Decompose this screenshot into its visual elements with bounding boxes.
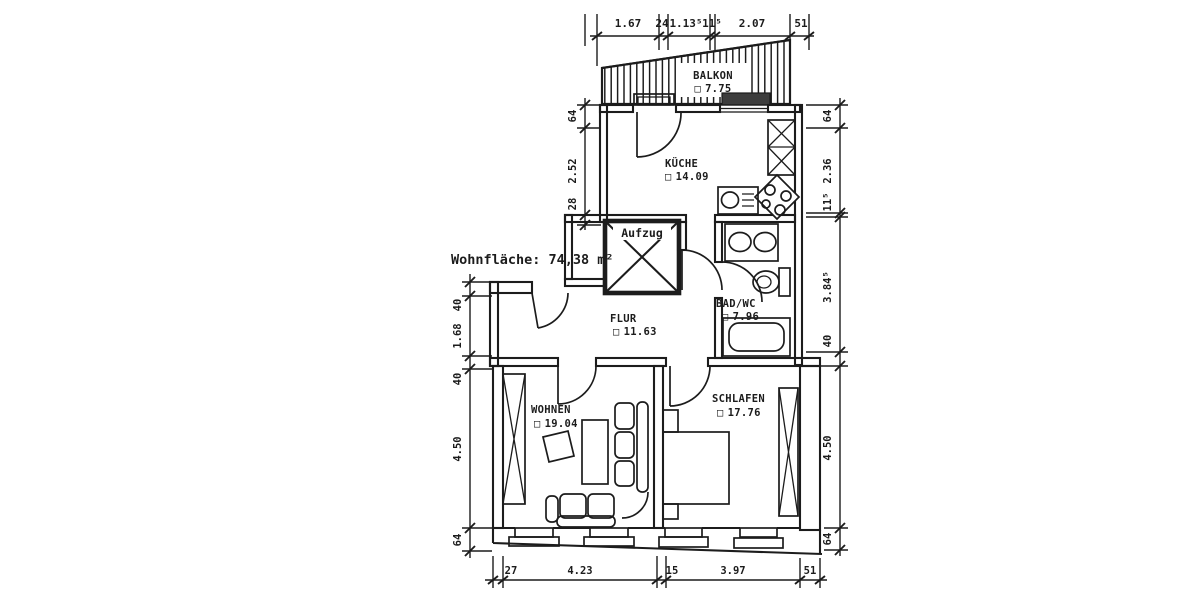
nightstand	[663, 504, 678, 519]
window-bay	[515, 528, 553, 537]
room-label-flur: FLUR	[610, 313, 637, 325]
bedroom-door-swing	[670, 366, 710, 406]
dimension-chain-left-lower: 40 1.68 40 4.50 64	[452, 274, 492, 558]
room-area-wohnen: □19.04	[534, 418, 578, 430]
wall-segment	[596, 358, 666, 366]
sofa-backrest	[637, 402, 648, 492]
dimension-label-top: 11⁵	[702, 17, 722, 30]
bath-door-swing	[722, 262, 762, 302]
dimension-label-bottom: 4.23	[567, 565, 592, 577]
floor-plan-page: { "title": "Wohnfläche: 74,38 m²", "elev…	[0, 0, 1200, 600]
wall-segment	[676, 105, 720, 112]
wall-segment	[490, 358, 558, 366]
couch-armrest	[546, 496, 558, 522]
room-label-bad: BAD/WC	[716, 298, 756, 310]
floor-plan-canvas: BALKON □7.75	[0, 0, 1200, 600]
balcony: BALKON □7.75	[602, 40, 790, 105]
extension-lines	[462, 282, 492, 551]
dimension-label-left: 1.68	[452, 323, 464, 348]
living-room-wardrobe-cross	[503, 374, 525, 504]
window-bay	[590, 528, 628, 537]
dimension-label-right: 64	[822, 110, 834, 123]
stove	[755, 175, 799, 219]
balcony-door-swing	[637, 112, 681, 157]
living-room-furniture	[503, 374, 648, 527]
window-bay	[740, 528, 777, 537]
wall-segment	[565, 279, 605, 286]
wall-segment	[795, 105, 802, 365]
dimension-chain-right: 64 2.36 11⁵ 3.84⁵ 40 4.50 64	[806, 98, 848, 556]
sofa-cushion	[615, 432, 634, 458]
floor-area-title: Wohnfläche: 74,38 m²	[451, 252, 614, 268]
dimension-label-right: 4.50	[822, 435, 834, 460]
dimension-label-bottom: 15	[666, 565, 679, 577]
wall-segment	[490, 282, 498, 366]
couch-cushion	[588, 494, 614, 518]
wall-segment	[800, 366, 820, 530]
dimension-label-top: 24	[655, 17, 669, 30]
bathtub-inner	[729, 323, 784, 351]
dimension-label-right: 11⁵	[822, 193, 834, 212]
window-bay-sill	[734, 538, 783, 548]
room-label-balkon: BALKON	[693, 70, 733, 82]
room-area-schlafen: □17.76	[717, 407, 761, 419]
room-area-bad: □7.96	[722, 311, 759, 323]
wall-segment	[493, 366, 503, 528]
hall-door-swing	[532, 293, 568, 328]
nightstand	[663, 410, 678, 432]
toilet-tank	[779, 268, 790, 296]
dimension-label-right: 2.36	[822, 158, 834, 183]
bedroom-wardrobe-cross	[779, 388, 798, 516]
extension-lines	[493, 556, 820, 588]
dimension-chain-left-upper: 64 2.52 28	[567, 98, 601, 230]
couch-cushion	[560, 494, 586, 518]
sofa-cushion	[615, 461, 634, 486]
dimension-label-right: 40	[822, 335, 834, 348]
dimension-label-top: 2.07	[739, 17, 766, 30]
dimension-label-left: 64	[567, 110, 579, 123]
elevator-label: Aufzug	[621, 226, 663, 240]
window-bay	[665, 528, 702, 537]
kitchen-fixtures	[718, 120, 799, 219]
toilet-bowl-inner	[757, 276, 771, 288]
dimension-chain-bottom: 27 4.23 15 3.97 51	[485, 556, 827, 588]
sofa-corner-arc	[622, 492, 648, 518]
dimension-label-right: 3.84⁵	[822, 271, 834, 303]
room-area-flur: □11.63	[613, 326, 657, 338]
kitchen-sink-basin	[722, 192, 739, 208]
window-bay-sill	[659, 537, 708, 547]
wall-segment	[600, 105, 633, 112]
dimension-label-left: 4.50	[452, 436, 464, 461]
side-table	[543, 431, 574, 462]
wall-segment	[600, 105, 607, 222]
elevator-shaft: Aufzug	[605, 221, 679, 293]
dimension-label-left: 40	[452, 299, 464, 312]
bottom-wall-outer-line	[493, 528, 822, 554]
dimension-label-left: 2.52	[567, 158, 579, 183]
living-room-table	[582, 420, 608, 484]
bathroom-fixtures	[723, 224, 790, 356]
dimension-label-bottom: 27	[505, 565, 518, 577]
wall-segment	[565, 215, 572, 279]
bed	[663, 432, 729, 504]
room-label-kueche: KÜCHE	[665, 156, 698, 170]
dimension-label-bottom: 3.97	[720, 565, 745, 577]
wall-segment	[715, 222, 722, 262]
kitchen-corner-cabinet-cross	[768, 120, 795, 175]
dimension-label-bottom: 51	[804, 565, 817, 577]
wall-segment	[654, 366, 663, 528]
dimension-label-top: 51	[794, 17, 808, 30]
room-label-schlafen: SCHLAFEN	[712, 393, 765, 405]
sofa-cushion	[615, 403, 634, 429]
dimension-label-left: 28	[567, 198, 579, 211]
window-bay-sill	[584, 537, 634, 546]
dimension-label-top: 1.13⁵	[669, 17, 702, 30]
room-area-kueche: □14.09	[665, 171, 709, 183]
washbasin-bowl	[754, 233, 776, 252]
wall-segment	[708, 358, 820, 366]
bottom-wall-windows	[493, 528, 822, 554]
dimension-label-top: 1.67	[615, 17, 642, 30]
dimension-label-right: 64	[822, 533, 834, 546]
balcony-window-sill	[722, 93, 770, 105]
dimension-label-left: 64	[452, 534, 464, 547]
dimension-label-left: 40	[452, 373, 464, 386]
washbasin-bowl	[729, 233, 751, 252]
wall-segment	[715, 215, 795, 222]
living-room-door-swing	[558, 366, 596, 404]
room-label-wohnen: WOHNEN	[531, 404, 571, 416]
kitchen-drainboard	[742, 194, 754, 206]
wall-segment	[490, 282, 532, 293]
